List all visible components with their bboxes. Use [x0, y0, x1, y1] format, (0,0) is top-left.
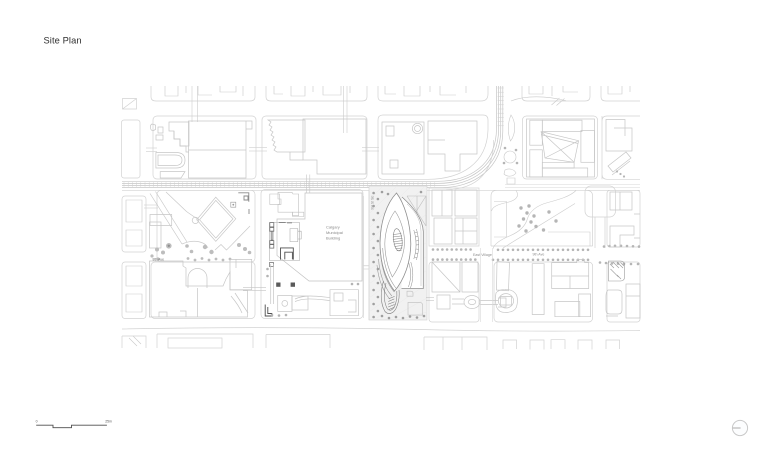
svg-text:0: 0: [36, 419, 38, 423]
svg-text:9th Ave: 9th Ave: [533, 253, 545, 257]
svg-text:East Village: East Village: [473, 253, 492, 257]
svg-text:25m: 25m: [105, 419, 112, 423]
svg-text:3rd St SE: 3rd St SE: [371, 195, 375, 210]
svg-text:Calgary: Calgary: [326, 225, 340, 230]
svg-text:Site Plan: Site Plan: [44, 36, 82, 46]
svg-text:Building: Building: [326, 236, 340, 241]
svg-text:Municipal: Municipal: [326, 230, 343, 235]
